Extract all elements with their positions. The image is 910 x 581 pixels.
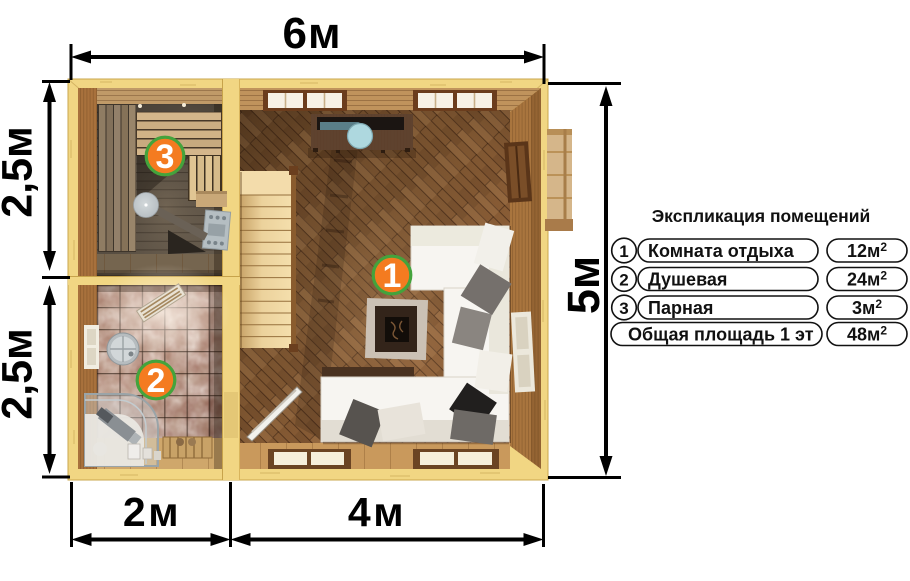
svg-text:2: 2 [619, 271, 628, 290]
svg-text:2м: 2м [123, 489, 181, 535]
svg-text:Душевая: Душевая [648, 270, 727, 290]
svg-text:4м: 4м [348, 489, 406, 535]
svg-text:Комната отдыха: Комната отдыха [648, 241, 795, 261]
svg-text:Экспликация помещений: Экспликация помещений [652, 206, 871, 226]
svg-text:Общая площадь 1 эт: Общая площадь 1 эт [628, 325, 814, 345]
svg-text:3: 3 [619, 299, 628, 318]
svg-text:3: 3 [156, 138, 175, 176]
svg-text:1: 1 [619, 242, 628, 261]
svg-text:Парная: Парная [648, 298, 713, 318]
svg-text:6м: 6м [282, 9, 341, 58]
svg-text:5м: 5м [558, 256, 609, 314]
svg-text:2,5м: 2,5м [0, 126, 42, 218]
svg-text:1: 1 [383, 257, 402, 295]
svg-text:2,5м: 2,5м [0, 328, 42, 420]
svg-text:2: 2 [147, 362, 166, 400]
